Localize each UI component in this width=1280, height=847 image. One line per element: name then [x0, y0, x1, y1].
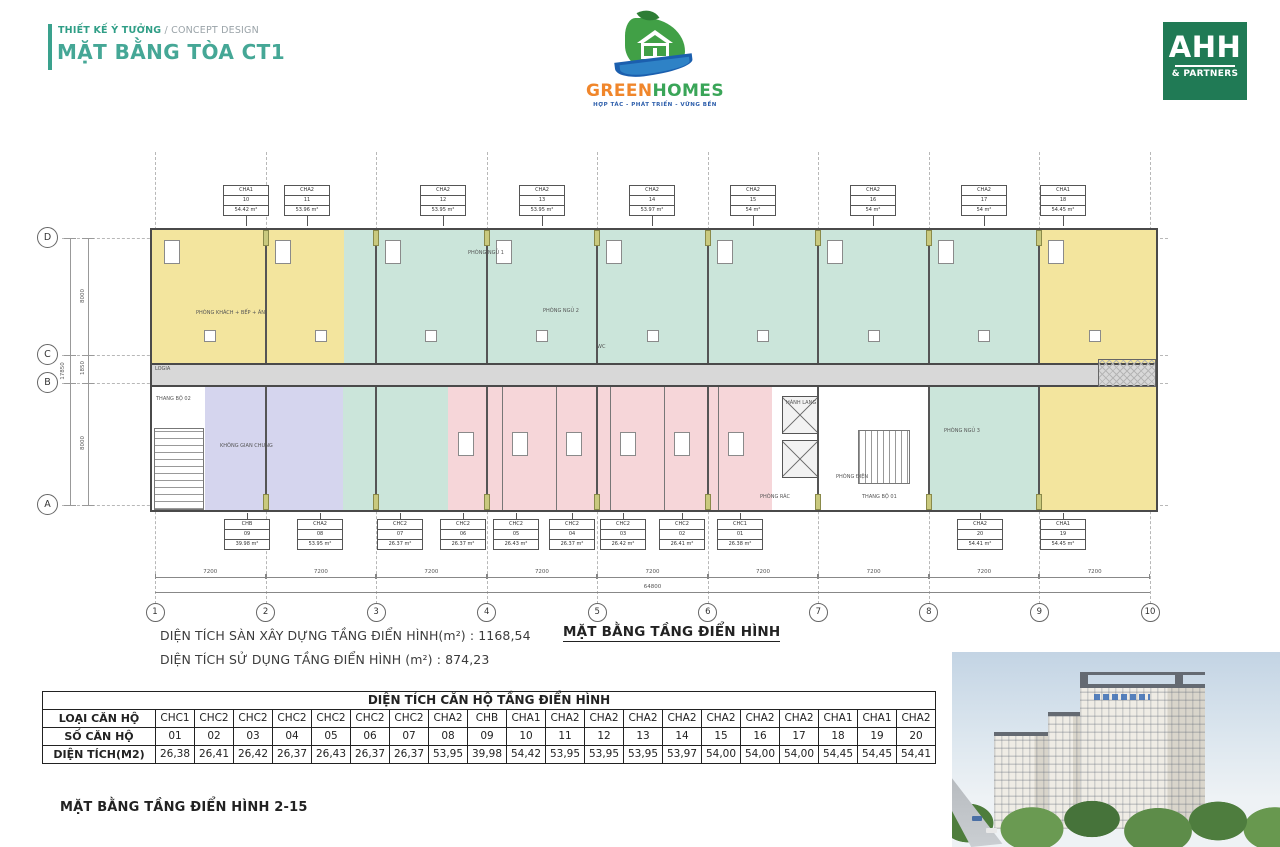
- table-row-areas: DIỆN TÍCH(M2) 26,3826,4126,4226,3726,432…: [43, 746, 935, 763]
- bay-dimension: 7200: [376, 569, 487, 578]
- unit-area: 54 m²: [851, 206, 895, 215]
- unit-number: 09: [225, 530, 269, 540]
- zone-bottom-right-cha1: [1040, 387, 1156, 510]
- usable-area-note: DIỆN TÍCH SỬ DỤNG TẦNG ĐIỂN HÌNH (m²) : …: [160, 652, 489, 667]
- unit-type: CHC2: [660, 520, 704, 530]
- unit-wall: [486, 387, 488, 510]
- furniture-bed: [606, 240, 622, 264]
- unit-wall: [707, 387, 709, 510]
- balcony-strip: [594, 230, 600, 246]
- unit-number: 03: [601, 530, 645, 540]
- unit-wall: [375, 387, 377, 510]
- unit-label-box: CHC2 06 26.37 m²: [440, 519, 486, 550]
- studio-wall: [502, 387, 503, 510]
- grid-column-bubble: 2: [256, 603, 275, 622]
- studio-wall: [664, 387, 665, 510]
- table-title: DIỆN TÍCH CĂN HỘ TẦNG ĐIỂN HÌNH: [43, 692, 935, 710]
- unit-number: 02: [660, 530, 704, 540]
- furniture-bed: [717, 240, 733, 264]
- area-cell: 26,42: [234, 746, 273, 763]
- furniture-table: [536, 330, 548, 342]
- unit-type: CHA1: [1041, 520, 1085, 530]
- unit-wall: [817, 387, 819, 510]
- dim-tick: [82, 383, 94, 384]
- room-label: LOGIA: [155, 366, 170, 372]
- number-cell: 10: [507, 728, 546, 745]
- left-dimension: 1850: [80, 361, 86, 375]
- type-cell: CHA2: [897, 710, 935, 727]
- furniture-bed: [827, 240, 843, 264]
- unit-area: 26.37 m²: [550, 540, 594, 549]
- balcony-strip: [815, 494, 821, 510]
- unit-label-box: CHC1 01 26.38 m²: [717, 519, 763, 550]
- table-row-types: LOẠI CĂN HỘ CHC1CHC2CHC2CHC2CHC2CHC2CHC2…: [43, 710, 935, 728]
- furniture-bed: [164, 240, 180, 264]
- balcony-strip: [484, 230, 490, 246]
- unit-area: 53.97 m²: [630, 206, 674, 215]
- bay-dimension: 7200: [597, 569, 708, 578]
- left-total-dimension: 17850: [60, 362, 66, 380]
- unit-area: 54.42 m²: [224, 206, 268, 215]
- area-cell: 53,95: [546, 746, 585, 763]
- unit-type: CHA2: [520, 186, 564, 196]
- grid-column-bubble: 10: [1141, 603, 1160, 622]
- balcony-strip: [263, 230, 269, 246]
- grid-row-bubble: D: [37, 227, 58, 248]
- number-cell: 15: [702, 728, 741, 745]
- unit-wall: [375, 230, 377, 363]
- type-cell: CHC2: [234, 710, 273, 727]
- area-cell: 26,37: [273, 746, 312, 763]
- unit-wall: [928, 387, 930, 510]
- room-label: THANG BỘ 01: [862, 494, 897, 500]
- furniture-bed: [566, 432, 582, 456]
- type-cell: CHC2: [351, 710, 390, 727]
- balcony-strip: [1036, 494, 1042, 510]
- furniture-table: [868, 330, 880, 342]
- area-cell: 26,37: [390, 746, 429, 763]
- unit-label-box: CHC2 04 26.37 m²: [549, 519, 595, 550]
- unit-number: 16: [851, 196, 895, 206]
- building-sign: [1094, 694, 1150, 700]
- unit-area: 53.95 m²: [520, 206, 564, 215]
- unit-label-box: CHA1 10 54.42 m²: [223, 185, 269, 216]
- unit-wall: [1038, 230, 1040, 363]
- unit-number: 04: [550, 530, 594, 540]
- type-cell: CHC2: [390, 710, 429, 727]
- bay-dimension: 7200: [266, 569, 377, 578]
- dim-tick: [82, 355, 94, 356]
- grid-column-bubble: 5: [588, 603, 607, 622]
- area-cells: 26,3826,4126,4226,3726,4326,3726,3753,95…: [156, 746, 935, 763]
- unit-type: CHC1: [718, 520, 762, 530]
- unit-area: 54.45 m²: [1041, 206, 1085, 215]
- unit-label-box: CHA2 20 54.41 m²: [957, 519, 1003, 550]
- furniture-table: [647, 330, 659, 342]
- balcony-strip: [484, 494, 490, 510]
- furniture-table: [315, 330, 327, 342]
- number-cell: 01: [156, 728, 195, 745]
- type-cell: CHB: [468, 710, 507, 727]
- row-header-type: LOẠI CĂN HỘ: [43, 710, 156, 727]
- number-cell: 08: [429, 728, 468, 745]
- number-cell: 06: [351, 728, 390, 745]
- left-dimension: 8000: [80, 289, 86, 303]
- unit-area: 26.41 m²: [660, 540, 704, 549]
- unit-label-box: CHA2 14 53.97 m²: [629, 185, 675, 216]
- stairwell-02: [154, 428, 204, 510]
- area-cell: 26,41: [195, 746, 234, 763]
- bay-dimension: 7200: [487, 569, 598, 578]
- number-cell: 17: [780, 728, 819, 745]
- unit-label-box: CHA2 17 54 m²: [961, 185, 1007, 216]
- left-dim-line-segments: [88, 238, 89, 505]
- balcony-strip: [594, 494, 600, 510]
- zone-bottom-cha2: [343, 387, 448, 510]
- plan-caption: MẶT BẰNG TẦNG ĐIỂN HÌNH: [563, 624, 780, 642]
- type-cell: CHA2: [741, 710, 780, 727]
- unit-area: 26.37 m²: [378, 540, 422, 549]
- unit-area: 26.37 m²: [441, 540, 485, 549]
- type-cell: CHC2: [195, 710, 234, 727]
- furniture-bed: [728, 432, 744, 456]
- area-cell: 54,00: [702, 746, 741, 763]
- unit-label-box: CHA2 13 53.95 m²: [519, 185, 565, 216]
- number-cells: 0102030405060708091011121314151617181920: [156, 728, 935, 745]
- type-cell: CHC2: [312, 710, 351, 727]
- elevator-shaft: [782, 440, 818, 478]
- dim-tick: [64, 383, 76, 384]
- unit-type: CHB: [225, 520, 269, 530]
- unit-label-box: CHC2 02 26.41 m²: [659, 519, 705, 550]
- balcony-strip: [926, 230, 932, 246]
- bay-dimension: 7200: [1039, 569, 1150, 578]
- unit-wall: [928, 230, 930, 363]
- furniture-table: [1089, 330, 1101, 342]
- balcony-strip: [705, 494, 711, 510]
- room-label: HÀNH LANG: [786, 400, 816, 406]
- balcony-strip: [815, 230, 821, 246]
- type-cell: CHA2: [429, 710, 468, 727]
- car: [972, 816, 982, 821]
- room-label: WC: [597, 344, 605, 350]
- total-dimension: 64800: [155, 584, 1150, 593]
- balcony-strip: [373, 494, 379, 510]
- unit-type: CHA2: [285, 186, 329, 196]
- grid-column-bubble: 6: [698, 603, 717, 622]
- area-cell: 53,95: [585, 746, 624, 763]
- type-cell: CHA1: [858, 710, 897, 727]
- dim-tick: [64, 355, 76, 356]
- unit-area: 53.95 m²: [421, 206, 465, 215]
- unit-area: 26.42 m²: [601, 540, 645, 549]
- number-cell: 11: [546, 728, 585, 745]
- balcony-strip: [926, 494, 932, 510]
- row-header-area: DIỆN TÍCH(M2): [43, 746, 156, 763]
- number-cell: 02: [195, 728, 234, 745]
- unit-number: 07: [378, 530, 422, 540]
- unit-label-box: CHA2 08 53.95 m²: [297, 519, 343, 550]
- room-label: KHÔNG GIAN CHUNG: [220, 443, 273, 449]
- area-cell: 26,37: [351, 746, 390, 763]
- area-cell: 26,43: [312, 746, 351, 763]
- furniture-bed: [1048, 240, 1064, 264]
- number-cell: 18: [819, 728, 858, 745]
- unit-type: CHC2: [550, 520, 594, 530]
- furniture-table: [204, 330, 216, 342]
- bay-dimension: 7200: [929, 569, 1040, 578]
- unit-area: 54 m²: [731, 206, 775, 215]
- left-dimension: 8000: [80, 436, 86, 450]
- type-cell: CHA1: [507, 710, 546, 727]
- unit-type: CHA2: [851, 186, 895, 196]
- dim-tick: [82, 238, 94, 239]
- unit-area: 54.45 m²: [1041, 540, 1085, 549]
- unit-label-box: CHA1 19 54.45 m²: [1040, 519, 1086, 550]
- studio-wall: [556, 387, 557, 510]
- room-label: PHÒNG ĐIỆN: [836, 474, 868, 480]
- furniture-bed: [674, 432, 690, 456]
- unit-number: 20: [958, 530, 1002, 540]
- area-cell: 39,98: [468, 746, 507, 763]
- number-cell: 19: [858, 728, 897, 745]
- unit-wall: [707, 230, 709, 363]
- unit-wall: [265, 230, 267, 363]
- area-cell: 54,45: [819, 746, 858, 763]
- number-cell: 05: [312, 728, 351, 745]
- unit-type: CHC2: [494, 520, 538, 530]
- grid-column-bubble: 1: [146, 603, 165, 622]
- dim-tick: [82, 505, 94, 506]
- construction-area-note: DIỆN TÍCH SÀN XÂY DỰNG TẦNG ĐIỂN HÌNH(m²…: [160, 628, 531, 643]
- unit-number: 06: [441, 530, 485, 540]
- room-label: PHÒNG RÁC: [760, 494, 790, 500]
- furniture-bed: [938, 240, 954, 264]
- furniture-table: [757, 330, 769, 342]
- grid-row-bubble: A: [37, 494, 58, 515]
- room-label: PHÒNG NGỦ 2: [543, 308, 579, 314]
- grid-row-bubble: C: [37, 344, 58, 365]
- area-cell: 53,97: [663, 746, 702, 763]
- balcony-strip: [705, 230, 711, 246]
- unit-number: 01: [718, 530, 762, 540]
- unit-type: CHA2: [421, 186, 465, 196]
- number-cell: 12: [585, 728, 624, 745]
- unit-type: CHC2: [441, 520, 485, 530]
- unit-number: 15: [731, 196, 775, 206]
- furniture-table: [978, 330, 990, 342]
- grid-column-bubble: 7: [809, 603, 828, 622]
- balcony-strip: [373, 230, 379, 246]
- number-cell: 16: [741, 728, 780, 745]
- dim-tick: [64, 238, 76, 239]
- unit-area: 26.38 m²: [718, 540, 762, 549]
- furniture-bed: [620, 432, 636, 456]
- unit-label-box: CHC2 05 26.43 m²: [493, 519, 539, 550]
- unit-number: 10: [224, 196, 268, 206]
- unit-type: CHA2: [731, 186, 775, 196]
- type-cell: CHC1: [156, 710, 195, 727]
- grid-column-bubble: 3: [367, 603, 386, 622]
- concept-design-sheet: THIẾT KẾ Ý TƯỞNG / CONCEPT DESIGN MẶT BẰ…: [0, 0, 1280, 847]
- unit-area: 53.95 m²: [298, 540, 342, 549]
- unit-wall: [596, 387, 598, 510]
- type-cell: CHA2: [663, 710, 702, 727]
- unit-label-box: CHA2 15 54 m²: [730, 185, 776, 216]
- unit-number: 17: [962, 196, 1006, 206]
- unit-number: 14: [630, 196, 674, 206]
- dim-tick: [64, 505, 76, 506]
- unit-number: 08: [298, 530, 342, 540]
- room-label: PHÒNG NGỦ 3: [944, 428, 980, 434]
- number-cell: 09: [468, 728, 507, 745]
- number-cell: 03: [234, 728, 273, 745]
- unit-wall: [1038, 387, 1040, 510]
- area-cell: 54,42: [507, 746, 546, 763]
- unit-type: CHA2: [298, 520, 342, 530]
- unit-label-box: CHA1 18 54.45 m²: [1040, 185, 1086, 216]
- unit-number: 05: [494, 530, 538, 540]
- area-cell: 54,41: [897, 746, 935, 763]
- table-row-numbers: SỐ CĂN HỘ 010203040506070809101112131415…: [43, 728, 935, 746]
- furniture-bed: [385, 240, 401, 264]
- unit-type: CHA2: [958, 520, 1002, 530]
- corridor-end-hatch: [1098, 359, 1156, 387]
- area-cell: 26,38: [156, 746, 195, 763]
- type-cell: CHA2: [624, 710, 663, 727]
- furniture-table: [425, 330, 437, 342]
- bay-dimension: 7200: [818, 569, 929, 578]
- furniture-bed: [458, 432, 474, 456]
- row-header-number: SỐ CĂN HỘ: [43, 728, 156, 745]
- unit-area: 26.43 m²: [494, 540, 538, 549]
- furniture-bed: [275, 240, 291, 264]
- area-cell: 53,95: [624, 746, 663, 763]
- unit-label-box: CHA2 16 54 m²: [850, 185, 896, 216]
- area-cell: 54,00: [741, 746, 780, 763]
- number-cell: 14: [663, 728, 702, 745]
- unit-type: CHC2: [601, 520, 645, 530]
- corridor: [152, 363, 1156, 387]
- unit-label-box: CHC2 07 26.37 m²: [377, 519, 423, 550]
- type-cell: CHA2: [585, 710, 624, 727]
- bay-dimension: 7200: [155, 569, 266, 578]
- studio-wall: [718, 387, 719, 510]
- grid-column-bubble: 9: [1030, 603, 1049, 622]
- type-cell: CHA2: [702, 710, 741, 727]
- type-cells: CHC1CHC2CHC2CHC2CHC2CHC2CHC2CHA2CHBCHA1C…: [156, 710, 935, 727]
- grid-row-bubble: B: [37, 372, 58, 393]
- zone-bottom-right-cha2: [930, 387, 1040, 510]
- unit-label-box: CHB 09 39.98 m²: [224, 519, 270, 550]
- unit-type: CHC2: [378, 520, 422, 530]
- number-cell: 07: [390, 728, 429, 745]
- grid-column-bubble: 4: [477, 603, 496, 622]
- balcony-strip: [263, 494, 269, 510]
- unit-label-box: CHA2 11 53.96 m²: [284, 185, 330, 216]
- apartment-area-table: DIỆN TÍCH CĂN HỘ TẦNG ĐIỂN HÌNH LOẠI CĂN…: [42, 691, 936, 764]
- unit-number: 12: [421, 196, 465, 206]
- type-cell: CHA2: [780, 710, 819, 727]
- unit-type: CHA1: [1041, 186, 1085, 196]
- unit-type: CHA2: [962, 186, 1006, 196]
- room-label: PHÒNG KHÁCH + BẾP + ĂN: [196, 310, 265, 316]
- furniture-bed: [512, 432, 528, 456]
- unit-number: 19: [1041, 530, 1085, 540]
- number-cell: 13: [624, 728, 663, 745]
- studio-wall: [610, 387, 611, 510]
- unit-label-box: CHC2 03 26.42 m²: [600, 519, 646, 550]
- number-cell: 04: [273, 728, 312, 745]
- area-cell: 54,00: [780, 746, 819, 763]
- unit-area: 54 m²: [962, 206, 1006, 215]
- unit-number: 13: [520, 196, 564, 206]
- room-label: THANG BỘ 02: [156, 396, 191, 402]
- trees: [952, 791, 1280, 847]
- balcony-strip: [1036, 230, 1042, 246]
- unit-number: 18: [1041, 196, 1085, 206]
- left-dim-line-total: [70, 238, 71, 505]
- area-cell: 54,45: [858, 746, 897, 763]
- bay-dimension: 7200: [708, 569, 819, 578]
- unit-type: CHA1: [224, 186, 268, 196]
- grid-column-bubble: 8: [919, 603, 938, 622]
- unit-number: 11: [285, 196, 329, 206]
- unit-label-box: CHA2 12 53.95 m²: [420, 185, 466, 216]
- footer-caption: MẶT BẰNG TẦNG ĐIỂN HÌNH 2-15: [60, 800, 308, 815]
- unit-area: 53.96 m²: [285, 206, 329, 215]
- unit-area: 54.41 m²: [958, 540, 1002, 549]
- unit-type: CHA2: [630, 186, 674, 196]
- number-cell: 20: [897, 728, 935, 745]
- unit-wall: [817, 230, 819, 363]
- type-cell: CHC2: [273, 710, 312, 727]
- zone-top-left-cha1: [152, 230, 344, 363]
- car: [986, 828, 997, 833]
- type-cell: CHA2: [546, 710, 585, 727]
- area-cell: 53,95: [429, 746, 468, 763]
- type-cell: CHA1: [819, 710, 858, 727]
- building-render-photo: [952, 652, 1280, 847]
- unit-area: 39.98 m²: [225, 540, 269, 549]
- room-label: PHÒNG NGỦ 1: [468, 250, 504, 256]
